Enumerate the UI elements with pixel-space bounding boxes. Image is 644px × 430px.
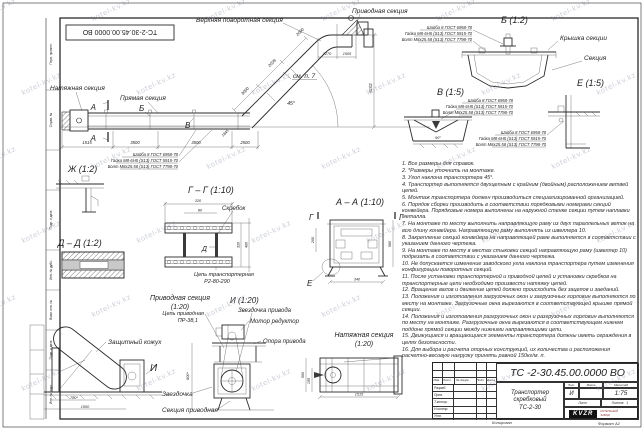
motor-label: Мотор редуктор — [250, 319, 300, 325]
sheet-label: Лист — [564, 399, 601, 407]
guard-cover-label: Защитный кожух — [108, 338, 162, 346]
doc-title-line: ТС-2-30 — [519, 405, 541, 413]
col-izm: Изм. — [434, 378, 440, 382]
fastener-bolt: Болт М8х25.58 (S13) ГОСТ 7798-70 — [443, 110, 514, 115]
side-strip-label: Подп. и дата — [49, 210, 53, 229]
tension-section-scale: (1:20) — [355, 341, 373, 348]
side-strip-label: Перв. примен. — [49, 43, 53, 64]
fastener-nut: Гайка М8-6Н5 (S13) ГОСТ 5915-70 — [446, 104, 514, 109]
drive-chain-label: ПР-38,1 — [178, 318, 198, 324]
doc-title: Транспортер скребковый ТС-2-30 — [496, 382, 564, 420]
tension-section-title: Натяжная секция — [334, 332, 393, 339]
side-strip-label: Инв. № дубл. — [49, 260, 53, 280]
dim: 2500 — [239, 140, 250, 145]
fastener-bolt: Болт М8х25.58 (S13) ГОСТ 7798-70 — [476, 142, 547, 147]
corner-stamp: ТС-2-30.45.00.0000 ВО — [66, 25, 174, 40]
col-list: Лист — [443, 378, 451, 382]
detail-marker-v: В — [185, 121, 191, 130]
col-sign: Подп. — [477, 378, 485, 382]
dim: 1845 — [221, 128, 230, 137]
detail-gg-title: Г – Г (1:10) — [188, 185, 234, 195]
chain-label: Цепь транспортерная — [194, 272, 254, 278]
dim-height: 6102 — [368, 83, 373, 93]
note-item: 4. Транспортер выполняется двухцепным с … — [402, 182, 636, 195]
dim: 1515 — [355, 393, 364, 397]
fastener-bolt: Болт М8х25.58 (S13) ГОСТ 7798-70 — [108, 164, 179, 169]
fastener-washer: Шайба 8 ГОСТ 6958-78 — [501, 130, 547, 135]
detail-b-title: Б (1:2) — [501, 15, 528, 25]
view-marker-i: И — [150, 363, 158, 374]
detail-dd: Д – Д (1:2) — [57, 238, 124, 278]
dim: 780* — [70, 396, 78, 400]
dim: 1500 — [81, 405, 90, 409]
section-marker-g: Г — [309, 213, 314, 222]
drive-section-scale: (1:20) — [171, 304, 189, 311]
chain-label: Р2-80-290 — [204, 279, 231, 285]
doc-title-line: скребковый — [514, 397, 547, 405]
row-checked: Пров. — [434, 393, 443, 397]
dim: 320 — [195, 199, 202, 203]
note-item: 2. *Размеры уточнить на монтаже. — [402, 168, 636, 174]
logo-cell: KVZR КОТЕЛЬНЫЙ ЗАВОД — [564, 407, 639, 420]
corner-stamp-number: ТС-2-30.45.00.0000 ВО — [82, 28, 157, 35]
support-label: Опора привода — [263, 339, 306, 345]
view-i-title: И (1:20) — [230, 296, 259, 305]
doc-number: ТС -2-30.45.00.0000 ВО — [496, 363, 639, 382]
fastener-washer: Шайба 8 ГОСТ 6958-78 — [468, 98, 514, 103]
note-item: 1. Все размеры для справок. — [402, 161, 636, 167]
dim: 155 — [307, 377, 311, 384]
fastener-bolt: Болт М8х25.58 (S13) ГОСТ 7798-70 — [402, 37, 473, 42]
mass-value — [579, 388, 603, 399]
dim: 3500 — [130, 140, 140, 145]
tension-section-view: Натяжная секция (1:20) 1515 560 155 — [301, 332, 402, 399]
scale-value: 1:75 — [603, 388, 639, 399]
dim: 580 — [388, 240, 392, 247]
drive-chain-label: Цепь приводная — [162, 311, 204, 317]
dim: 320 — [237, 241, 241, 248]
notes-block: 1. Все размеры для справок. 2. *Размеры … — [402, 161, 636, 360]
col-doc: № докум. — [456, 378, 469, 382]
dim: 1270 — [323, 52, 332, 56]
row-tcontrol: Т.контр. — [434, 400, 448, 404]
dim: 800* — [186, 372, 190, 380]
note-item: 6. Порядок сборки производить в соответс… — [402, 202, 636, 221]
row-developed: Разраб. — [434, 386, 446, 390]
see-note-label: см. п. 7 — [293, 73, 316, 80]
section-marker-d: Д — [201, 246, 207, 253]
row-ncontrol: Н.контр. — [434, 407, 448, 411]
dim: 2000 — [294, 26, 305, 37]
dim: 3000 — [240, 85, 251, 96]
drive-sprocket-label: Звездочка привода — [238, 308, 292, 314]
note-item: 7. На монтаже по месту выполнить направл… — [402, 221, 636, 234]
detail-v-title: В (1:5) — [437, 87, 464, 97]
dim: 560 — [301, 371, 305, 378]
detail-dd-title: Д – Д (1:2) — [57, 238, 102, 248]
note-item: 15. Движущиеся и вращающиеся элементы тр… — [402, 333, 636, 346]
fastener-nut: Гайка М8-6Н5 (S13) ГОСТ 5915-70 — [479, 136, 547, 141]
dim: 1515 — [82, 140, 92, 145]
note-item: 9. На монтаже по месту в местах стыковки… — [402, 248, 636, 261]
tension-section-label: Натяжная секция — [50, 85, 105, 92]
dim: 200 — [311, 236, 315, 244]
logo-subtext-line: ЗАВОД — [600, 414, 618, 417]
note-item: 12. Вращение валов и движение цепей долж… — [402, 287, 636, 293]
cover-label: Крышка секции — [560, 35, 607, 42]
note-item: 3. Угол наклона транспортера 45°. — [402, 175, 636, 181]
scraper-label: Скребок — [222, 206, 247, 212]
drawing-sheet: Перв. примен. Справ. № Подп. и дата Инв.… — [0, 0, 644, 430]
dim: 80 — [198, 209, 203, 213]
upper-section-label: Верхняя поворотная секция — [196, 17, 283, 24]
format-label: Формат А2 — [598, 421, 620, 426]
note-item: 13. Положения и изготовления загрузочных… — [402, 294, 636, 313]
note-item: 11. После установки транспортерной и при… — [402, 274, 636, 287]
kvzr-logo: KVZR — [569, 410, 597, 418]
drive-section-title: Приводная секция — [150, 294, 210, 302]
copied-label: Копировал — [492, 420, 512, 425]
dim: 340 — [354, 278, 361, 282]
side-strip-label: Справ. № — [49, 112, 53, 127]
detail-aa: А – А (1:10) Г Г Е 340 580 200 — [307, 197, 404, 288]
lit-value: И — [564, 388, 579, 399]
fastener-washer: Шайба 8 ГОСТ 6958-78 — [133, 152, 179, 157]
fastener-washer: Шайба 8 ГОСТ 6958-78 — [427, 25, 473, 30]
dim: 1505 — [343, 52, 352, 56]
section-marker-a: А — [90, 103, 96, 112]
detail-marker-b: Б — [139, 104, 144, 113]
fastener-nut: Гайка М8-6Н5 (S13) ГОСТ 5915-70 — [111, 158, 179, 163]
sheets-label: Листов — [612, 401, 624, 405]
sheets-value: 1 — [626, 401, 628, 405]
row-approved: Утв. — [434, 414, 442, 418]
note-item: 8. Закрепление секций конвейера на напра… — [402, 235, 636, 248]
dim: 3500 — [191, 140, 201, 145]
detail-marker-e: Е — [307, 279, 313, 288]
note-item: 5. Монтаж транспортера должен производит… — [402, 195, 636, 201]
angle-label: 90° — [435, 136, 441, 140]
dim: 400 — [245, 241, 249, 248]
title-block: Изм. Лист № докум. Подп. Дата Разраб. Пр… — [432, 362, 638, 419]
col-date: Дата — [487, 378, 495, 382]
angle-label: 45° — [287, 101, 295, 107]
logo-subtext: КОТЕЛЬНЫЙ ЗАВОД — [600, 410, 618, 417]
note-item: 14. Положения и изготовления разгрузочны… — [402, 314, 636, 333]
note-item: 10. Не допускается изменение заводского … — [402, 261, 636, 274]
drive-section-label: Приводная секция — [352, 7, 408, 15]
side-strip-label: Взам. инв. № — [49, 300, 53, 320]
section-label: Секция — [584, 55, 607, 62]
detail-zh: Ж (1:2) — [56, 164, 104, 212]
sheets-cell: Листов 1 — [601, 399, 639, 407]
detail-gg: Г – Г (1:10) 320 80 320 400 Скребок — [163, 185, 254, 285]
detail-e-title: Е (1:5) — [577, 78, 604, 88]
sprocket-label: Звездочка — [162, 390, 193, 398]
straight-section-label: Прямая секция — [120, 95, 166, 102]
detail-aa-title: А – А (1:10) — [335, 197, 384, 207]
dim: 2039 — [266, 57, 277, 68]
note-item: 16. Для выбора и расчета опорных констру… — [402, 347, 636, 360]
fastener-nut: Гайка М8-6Н5 (S13) ГОСТ 5915-70 — [405, 31, 473, 36]
detail-zh-title: Ж (1:2) — [67, 164, 97, 174]
